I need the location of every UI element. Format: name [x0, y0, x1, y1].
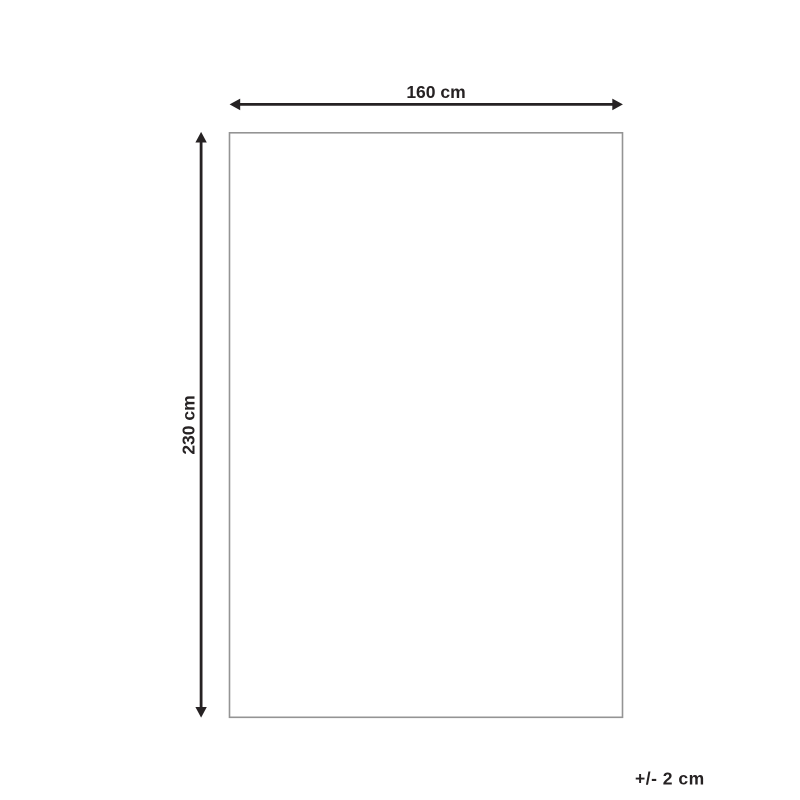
- svg-text:230 cm: 230 cm: [179, 395, 199, 454]
- svg-text:+/- 2 cm: +/- 2 cm: [635, 769, 705, 789]
- svg-text:160 cm: 160 cm: [406, 82, 465, 102]
